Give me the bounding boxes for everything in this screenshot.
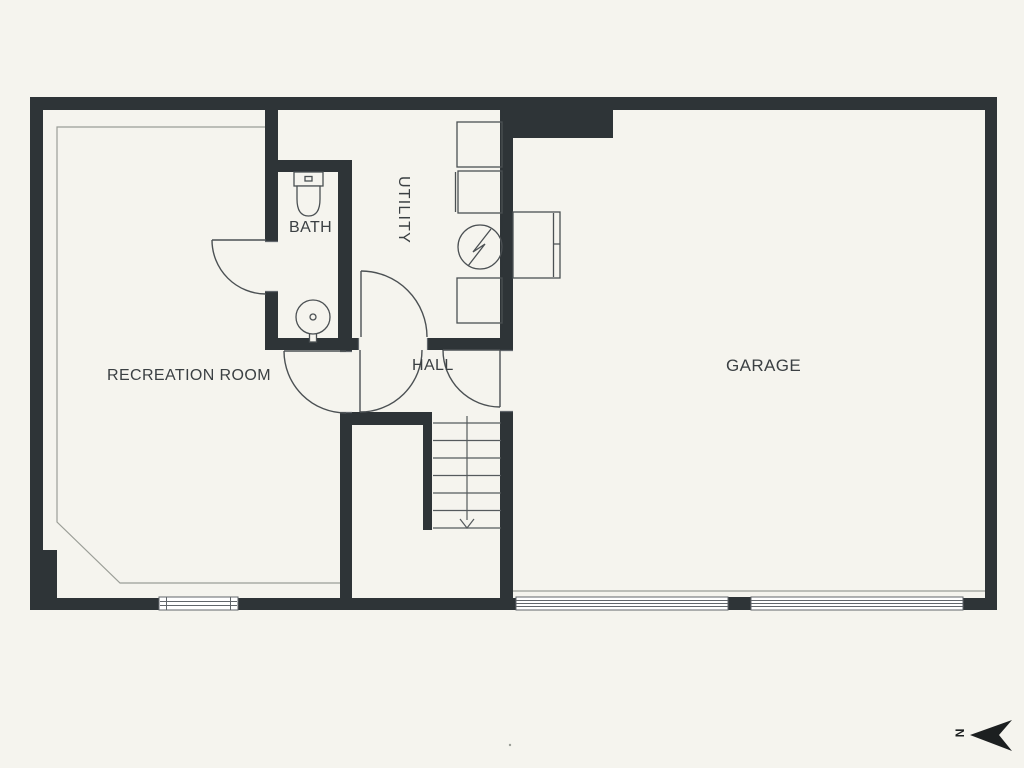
doorway-rec-hall [340, 351, 352, 413]
room-label-bath: BATH [289, 219, 332, 237]
wall-outer-left-lower-block [30, 550, 57, 598]
water-tank-icon [513, 212, 560, 278]
room-label-garage: GARAGE [726, 357, 801, 375]
sink-icon [296, 300, 330, 342]
staircase [433, 416, 501, 528]
appliance-rect-1 [457, 122, 502, 167]
wall-outer-top [30, 97, 997, 110]
wall-outer-left [30, 110, 43, 550]
door-rec-hall [284, 351, 346, 413]
wall-stairwell-left [423, 412, 432, 530]
electrical-panel-icon [458, 225, 502, 269]
toilet-icon [294, 172, 323, 216]
stairs-down-arrow [460, 519, 474, 528]
wall-top-block [505, 110, 613, 138]
page-dot [509, 744, 511, 746]
wall-stairwell-top [352, 412, 432, 425]
lightning-bolt [468, 229, 491, 266]
doorway-hall-utility [358, 338, 428, 350]
floor-plan-page: RECREATION ROOM BATH UTILITY HALL GARAGE… [0, 0, 1024, 768]
wall-outer-bottom [30, 598, 997, 610]
door-jambs [265, 242, 513, 413]
utility-appliances [456, 122, 503, 323]
doorway-bath-west [265, 241, 278, 292]
wall-outer-right [985, 110, 997, 610]
wall-garage-door-pillar [728, 597, 751, 610]
north-letter: N [952, 729, 966, 738]
wall-bath-east [338, 160, 352, 338]
doorway-hall-garage [500, 350, 513, 412]
appliance-rect-2 [458, 171, 502, 213]
north-arrow-icon [970, 720, 1012, 751]
appliance-rect-3 [457, 278, 502, 323]
room-label-utility: UTILITY [394, 176, 412, 244]
room-label-hall: HALL [412, 357, 454, 375]
door-bath [212, 240, 266, 294]
room-label-recreation-room: RECREATION ROOM [107, 367, 271, 385]
door-utility-swing [361, 271, 427, 337]
rec-room-inner-outline [57, 127, 340, 583]
wall-bath-west [265, 110, 278, 345]
